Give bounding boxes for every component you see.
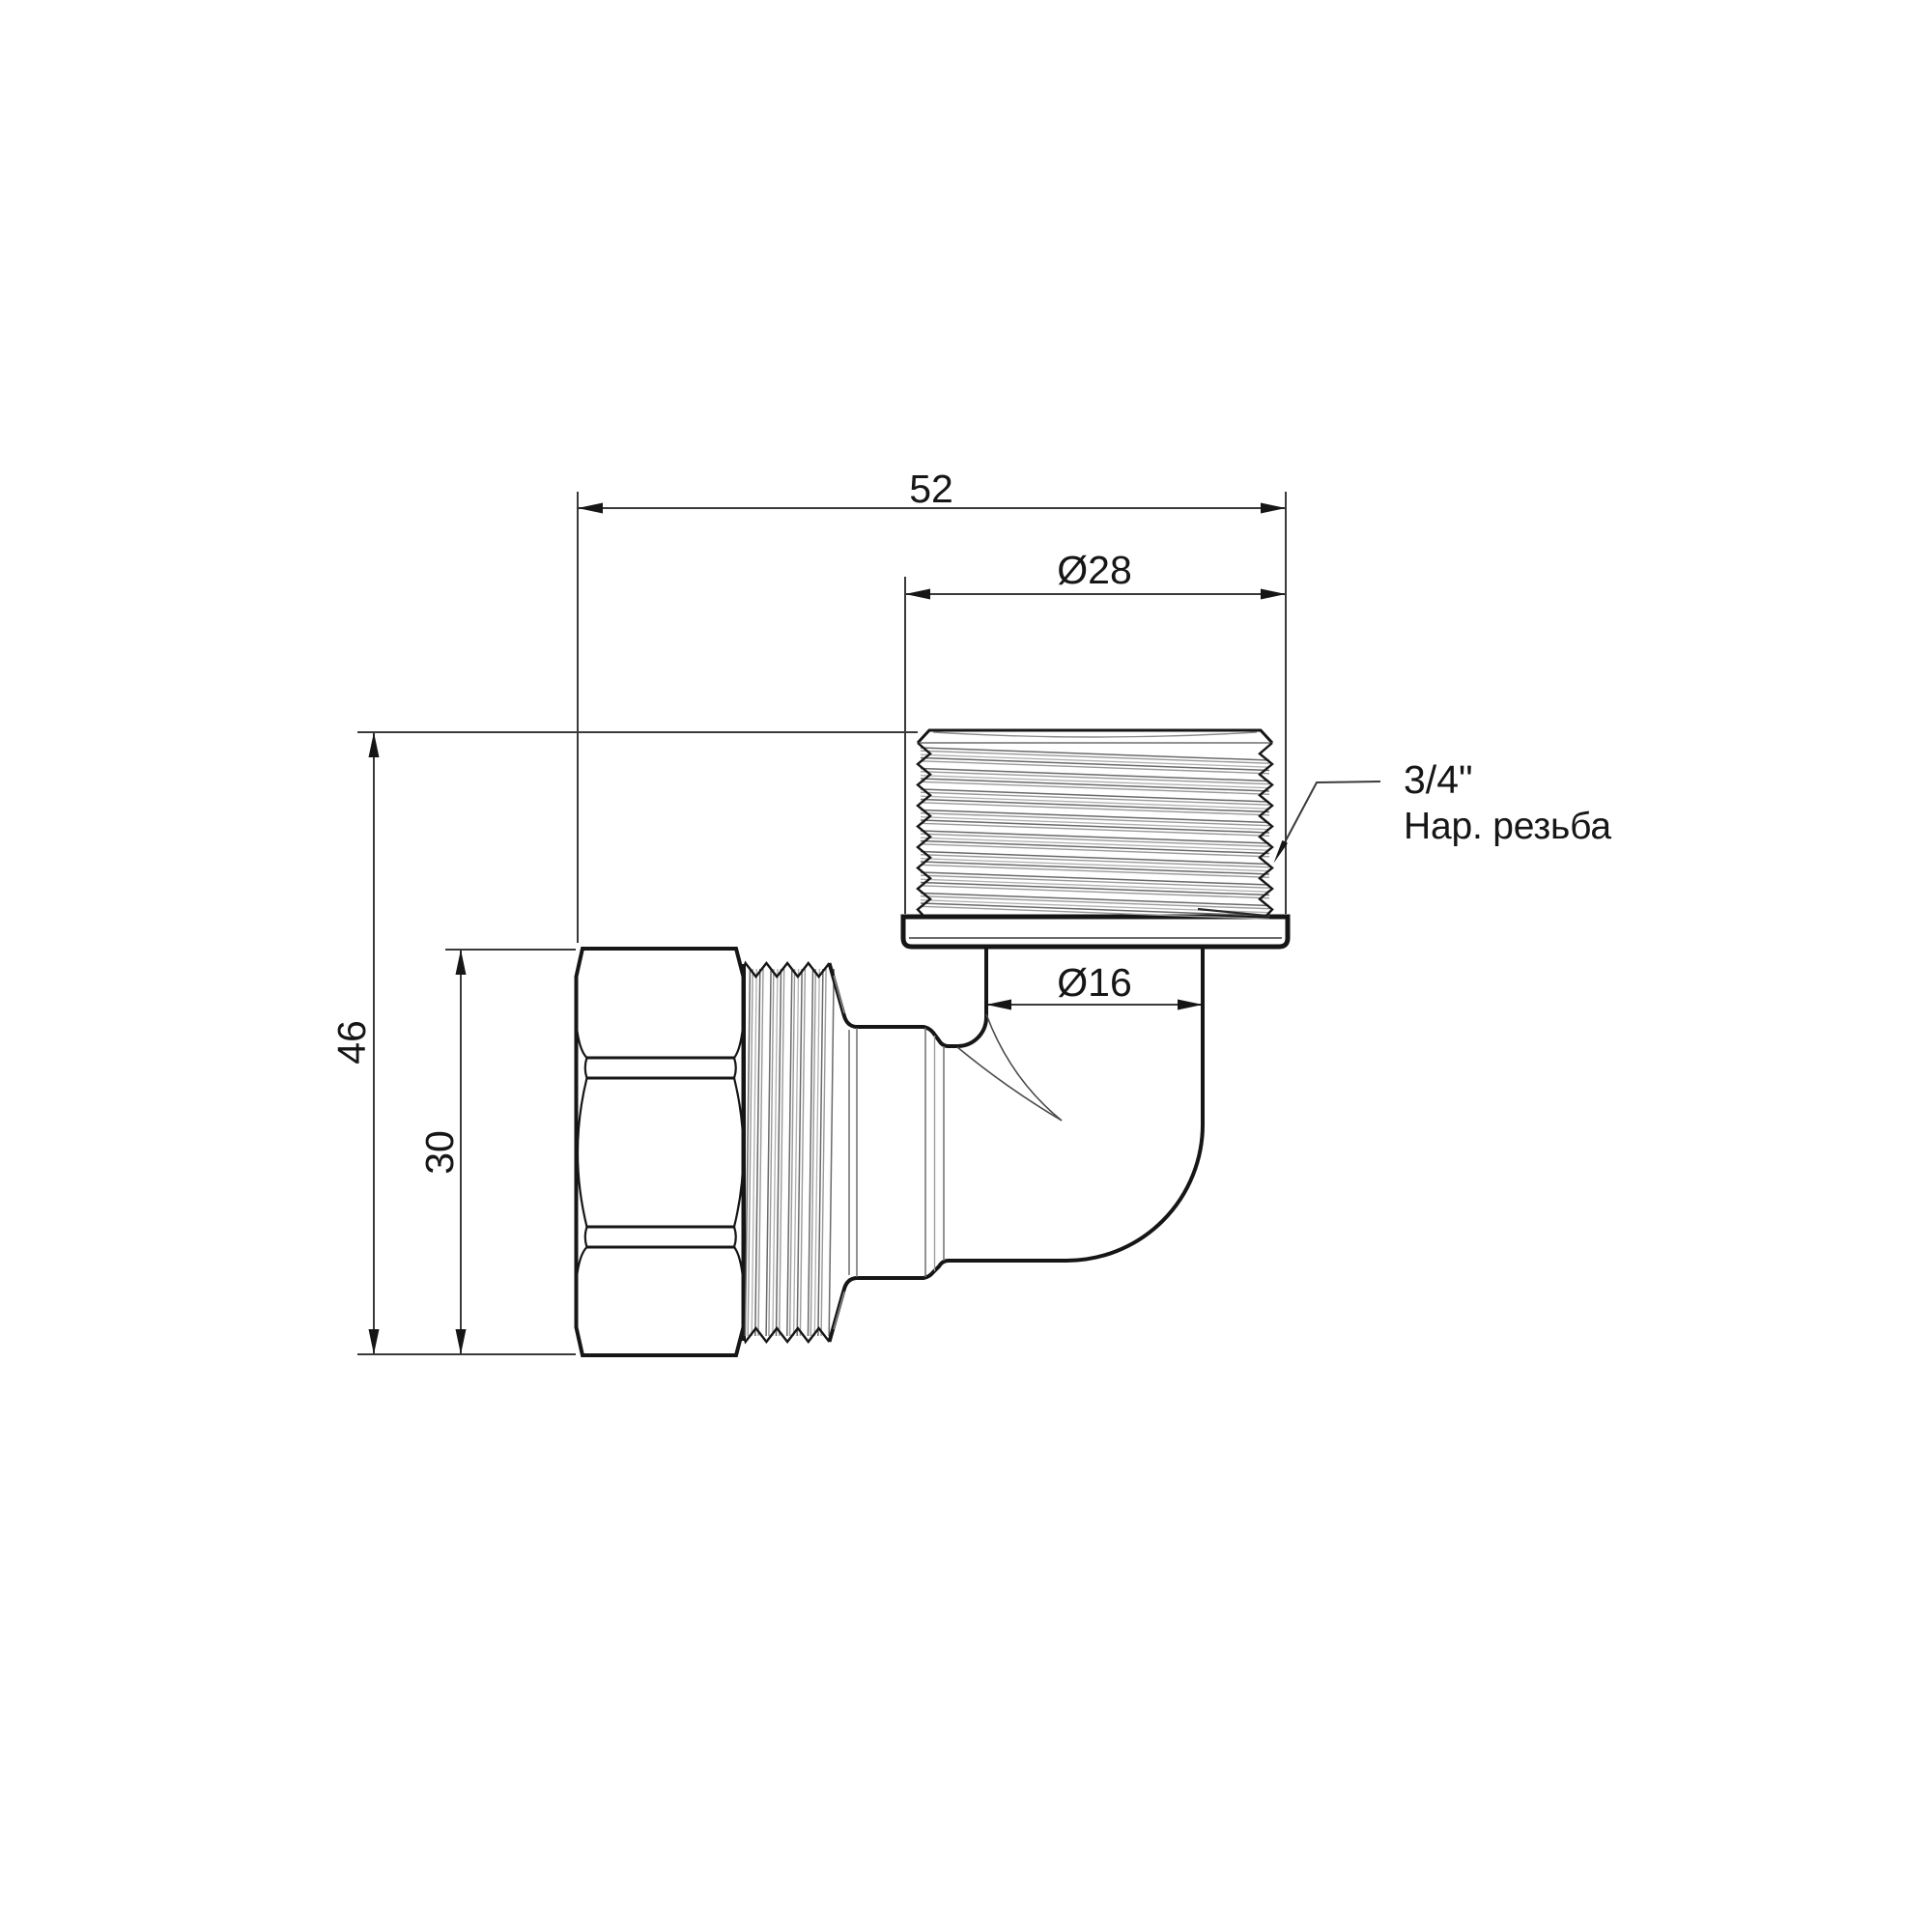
svg-text:Ø28: Ø28 xyxy=(1057,548,1132,592)
svg-text:Нар. резьба: Нар. резьба xyxy=(1404,806,1611,847)
svg-text:3/4": 3/4" xyxy=(1404,757,1473,802)
svg-text:52: 52 xyxy=(909,467,953,511)
svg-text:Ø16: Ø16 xyxy=(1057,960,1132,1005)
svg-text:30: 30 xyxy=(417,1130,462,1175)
svg-text:46: 46 xyxy=(329,1020,374,1065)
